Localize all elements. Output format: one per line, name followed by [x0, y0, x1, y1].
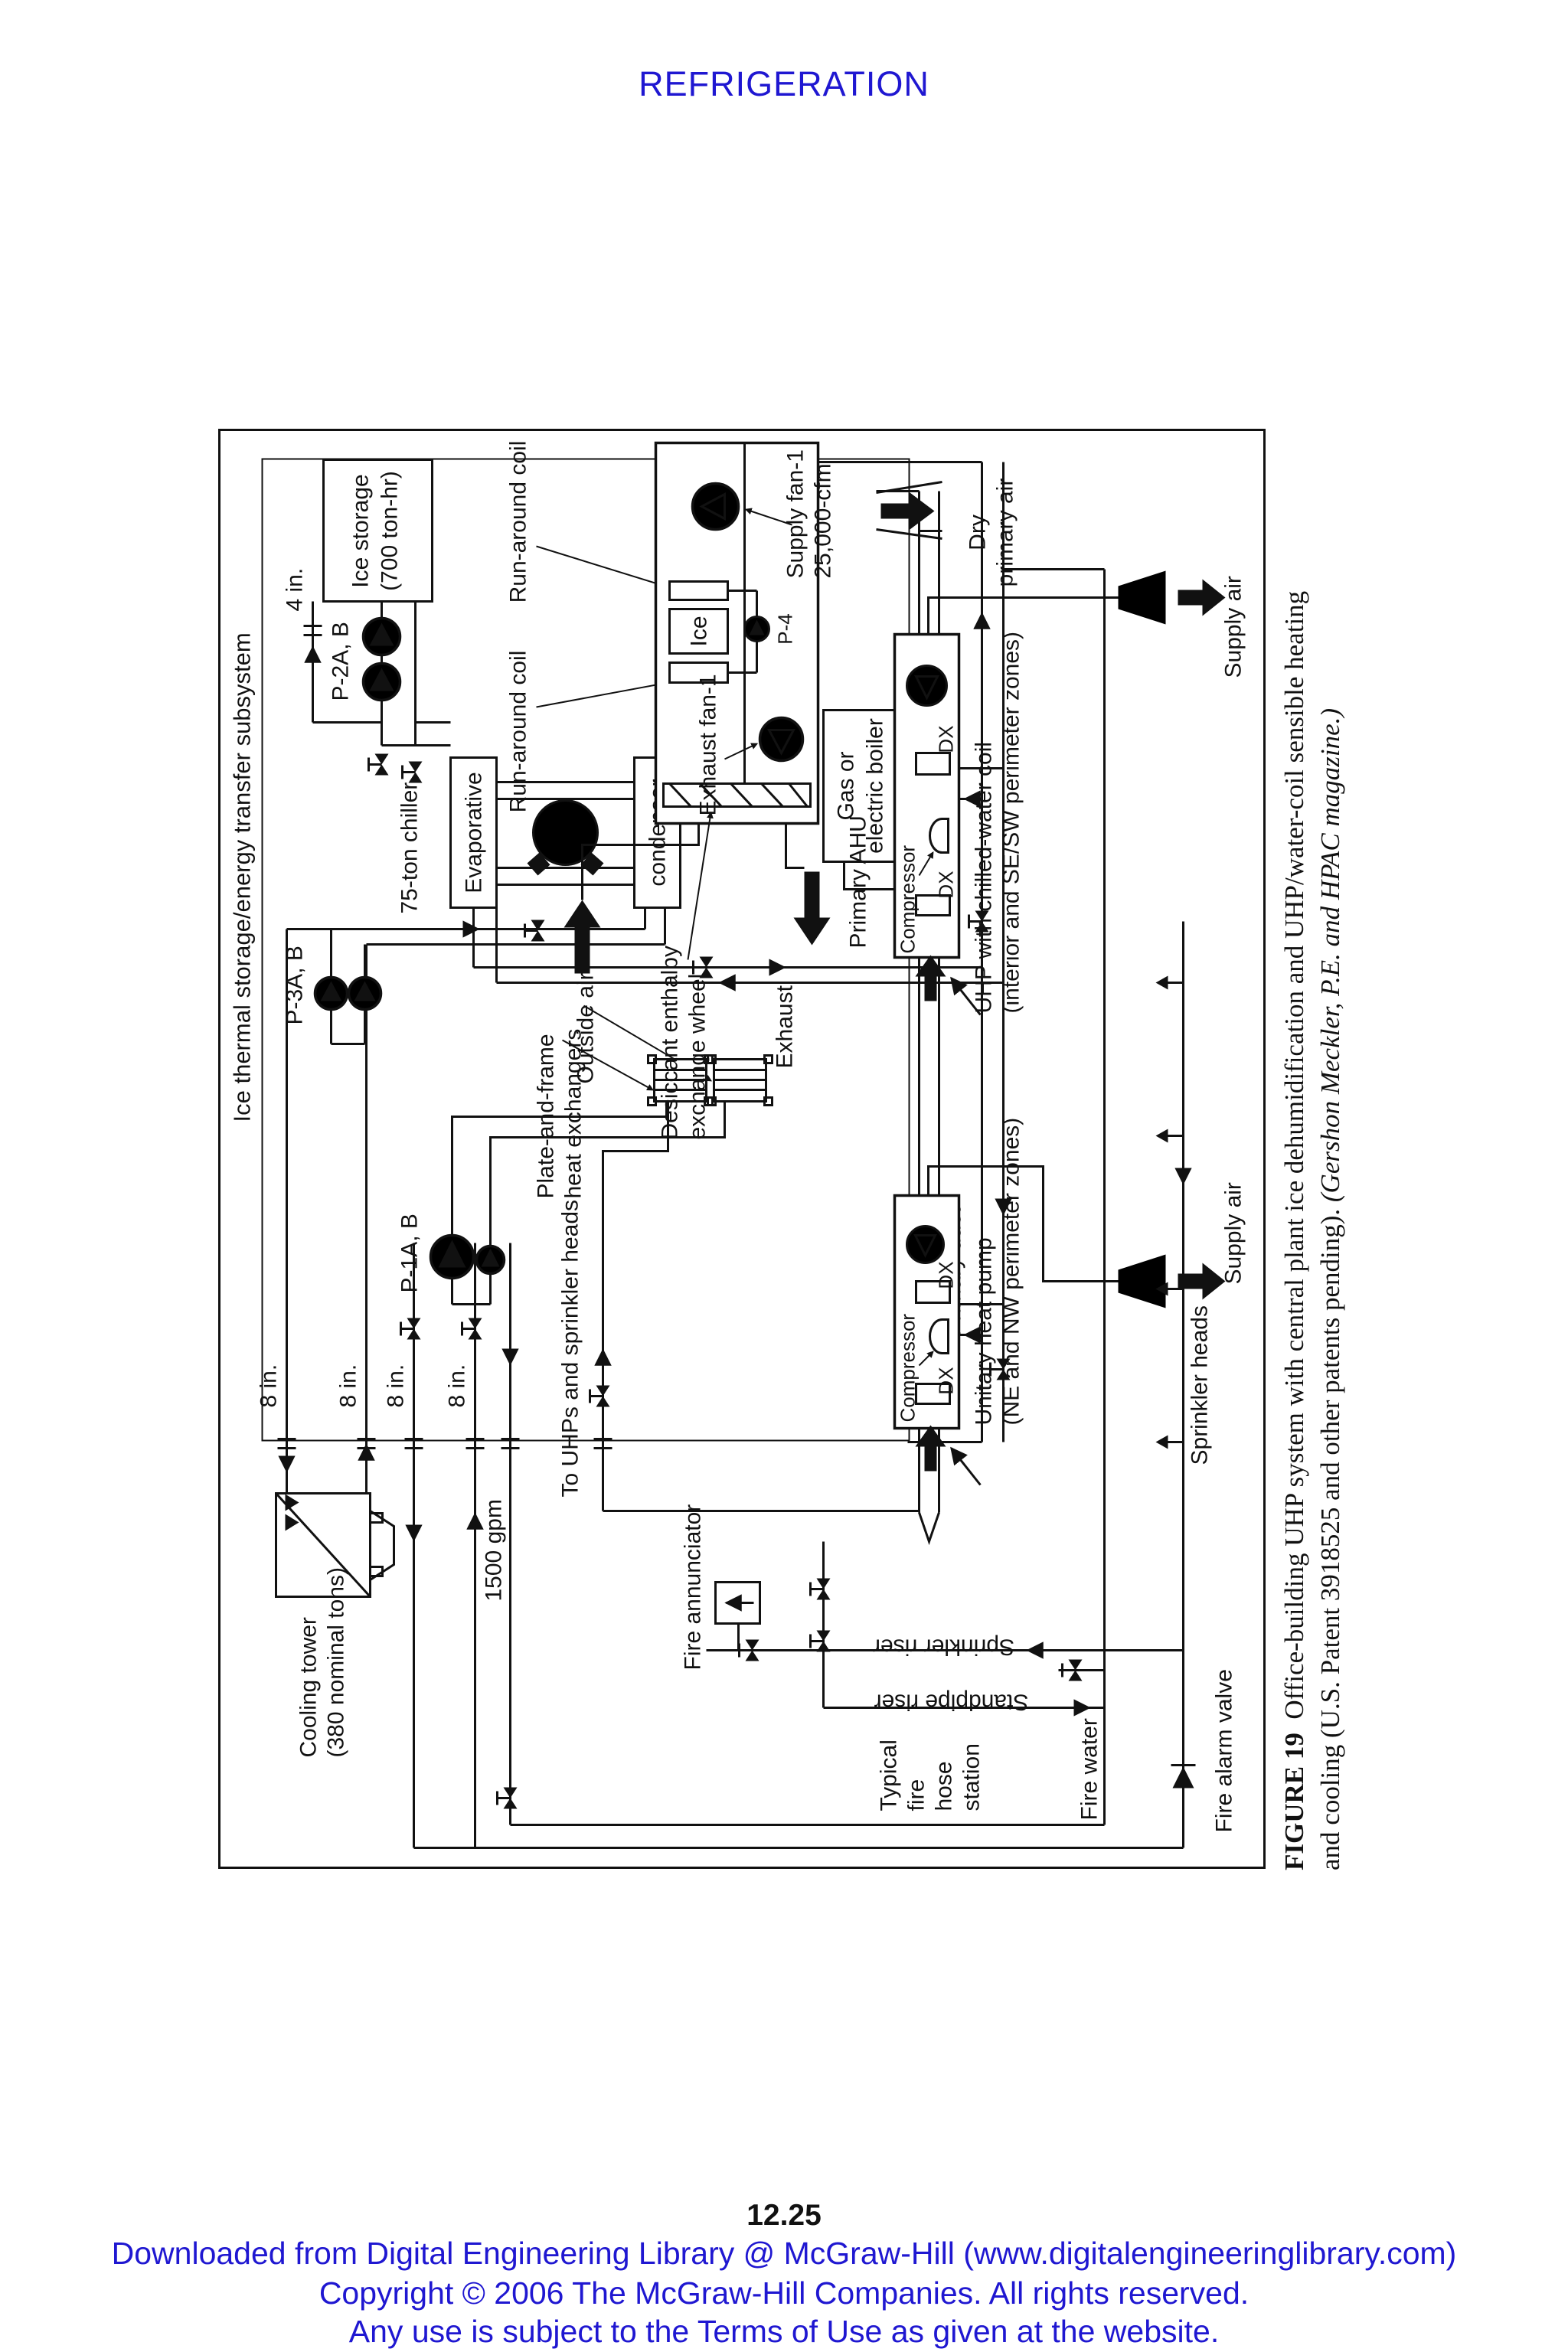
- caption-credit: (Gershon Meckler, P.E. and HPAC magazine…: [1315, 708, 1345, 1202]
- outside-air-arrow: [564, 900, 601, 974]
- supply-fan-label: Supply fan-1: [783, 449, 808, 578]
- pump-p4-label: P-4: [774, 613, 797, 644]
- pipe-8in-label: 8 in.: [445, 1364, 470, 1408]
- pipe-4in-label: 4 in.: [283, 568, 308, 612]
- pipe-8in-label: 8 in.: [336, 1364, 361, 1408]
- boiler-label: Gas or: [834, 751, 859, 820]
- supply-air-label: Supply air: [1221, 576, 1246, 678]
- run-around-leader: [537, 547, 665, 586]
- footer-line-2: Copyright © 2006 The McGraw-Hill Compani…: [0, 2275, 1568, 2311]
- run-around-coil-label: Run-around coil: [506, 441, 531, 603]
- desiccant-label2: exchange wheel: [685, 974, 710, 1140]
- gpm-label: 1500 gpm: [482, 1499, 507, 1601]
- figure-19-diagram: Ice thermal storage/energy transfer subs…: [217, 427, 1268, 1871]
- hvac-schematic: Ice thermal storage/energy transfer subs…: [217, 427, 1268, 1871]
- dx-label: DX: [935, 871, 958, 898]
- ice-coil-label: Ice: [687, 616, 712, 646]
- caption-text-2: and cooling (U.S. Patent 3918525 and oth…: [1315, 1202, 1345, 1870]
- to-uhps-label: To UHPs and sprinkler heads: [558, 1200, 583, 1498]
- figure-number: FIGURE 19: [1279, 1733, 1309, 1870]
- sprinkler-heads-label: Sprinkler heads: [1187, 1305, 1213, 1465]
- desiccant-label: Desiccant enthalpy: [658, 946, 683, 1139]
- pump-p1a: [431, 1236, 474, 1279]
- pump-p2-label: P-2A, B: [328, 622, 354, 701]
- supply-horn-1: [929, 571, 1226, 635]
- cooling-tower-label2: (380 nominal tons): [324, 1567, 349, 1757]
- run-around-coil-label2: Run-around coil: [506, 651, 531, 813]
- uhp1-fan-icon: [907, 666, 947, 706]
- exhaust-fan-label: Exhaust fan-1: [696, 674, 721, 815]
- hose-station-label3: hose: [932, 1761, 957, 1811]
- primary-ahu-label: Primary AHU: [846, 815, 871, 948]
- outside-air-label: Outside air: [573, 972, 599, 1083]
- fire-annunciator-label: Fire annunciator: [681, 1504, 706, 1671]
- pump-p1b: [477, 1246, 505, 1274]
- uhp-chw-label: UHP with chilled-water coil: [972, 742, 997, 1014]
- dx-label: DX: [935, 725, 958, 753]
- pump-p3-label: P-3A, B: [283, 946, 308, 1024]
- desiccant-wheel-icon: [664, 784, 811, 807]
- dry-primary-label: Dry: [965, 514, 991, 550]
- uhp2-fan-icon: [907, 1227, 944, 1263]
- figure-caption: FIGURE 19 Office-building UHP system wit…: [1276, 426, 1390, 1870]
- fire-alarm-check-valve: [1173, 1767, 1194, 1788]
- to-uhps-pipe: [590, 1102, 920, 1511]
- dx-label: DX: [935, 1261, 958, 1289]
- footer-line-1: Downloaded from Digital Engineering Libr…: [0, 2236, 1568, 2272]
- chiller-label: 75-ton chiller: [397, 782, 423, 914]
- heat-exchanger-2: [708, 1056, 773, 1106]
- fire-water-label: Fire water: [1077, 1718, 1102, 1820]
- fire-alarm-valve-label: Fire alarm valve: [1212, 1669, 1237, 1832]
- pump-p1-label: P-1A, B: [397, 1214, 423, 1292]
- cooling-tower-label: Cooling tower: [296, 1617, 322, 1757]
- supply-fan-label2: 25,000-cfm: [811, 463, 836, 578]
- pump-p3a: [315, 978, 348, 1010]
- exhaust-arrow: [794, 872, 831, 946]
- subsystem-title: Ice thermal storage/energy transfer subs…: [229, 632, 256, 1122]
- compressor-label: Compressor: [897, 845, 920, 954]
- exhaust-fan-icon: [760, 718, 803, 761]
- supply-fan-icon: [693, 484, 739, 530]
- exhaust-label: Exhaust: [773, 985, 798, 1068]
- pump-p3b: [349, 978, 381, 1010]
- chiller-compressor-icon: [534, 801, 598, 865]
- fire-annunciator-box: [716, 1583, 760, 1624]
- ice-storage-label: Ice storage: [348, 474, 374, 587]
- hose-station-label4: station: [959, 1743, 985, 1811]
- caption-text-1: Office-building UHP system with central …: [1279, 591, 1309, 1720]
- caption-line-2: and cooling (U.S. Patent 3918525 and oth…: [1312, 426, 1348, 1870]
- supply-air-label2: Supply air: [1221, 1182, 1246, 1284]
- pump-p2b: [364, 619, 400, 655]
- page-number: 12.25: [0, 2199, 1568, 2233]
- pump-p4: [745, 617, 769, 642]
- evaporator-box-label: Evaporative: [462, 772, 487, 893]
- dry-primary-label2: primary air: [993, 479, 1018, 587]
- pipe-8in-label: 8 in.: [384, 1364, 409, 1408]
- sprinkler-riser-label: Sprinkler riser: [873, 1635, 1014, 1660]
- uhp2-diag-arrow: [952, 1449, 981, 1485]
- hose-station-label2: fire: [904, 1779, 929, 1811]
- footer-line-3: Any use is subject to the Terms of Use a…: [0, 2314, 1568, 2350]
- pipe-8in-label: 8 in.: [256, 1364, 282, 1408]
- hose-station-label: Typical: [877, 1739, 902, 1811]
- pump-p2a: [364, 664, 400, 701]
- caption-line-1: FIGURE 19 Office-building UHP system wit…: [1276, 426, 1312, 1870]
- book-page: REFRIGERATION Ice thermal storage/energy…: [0, 0, 1568, 2352]
- standpipe-riser-label: Standpipe riser: [874, 1690, 1029, 1715]
- dx-label: DX: [935, 1367, 958, 1394]
- running-head: REFRIGERATION: [0, 64, 1568, 104]
- ice-storage-label2: (700 ton-hr): [377, 471, 403, 591]
- compressor-label2: Compressor: [897, 1314, 920, 1423]
- unitary-hp-label: Unitary heat pump: [972, 1237, 997, 1425]
- exhaust-duct: [786, 824, 805, 868]
